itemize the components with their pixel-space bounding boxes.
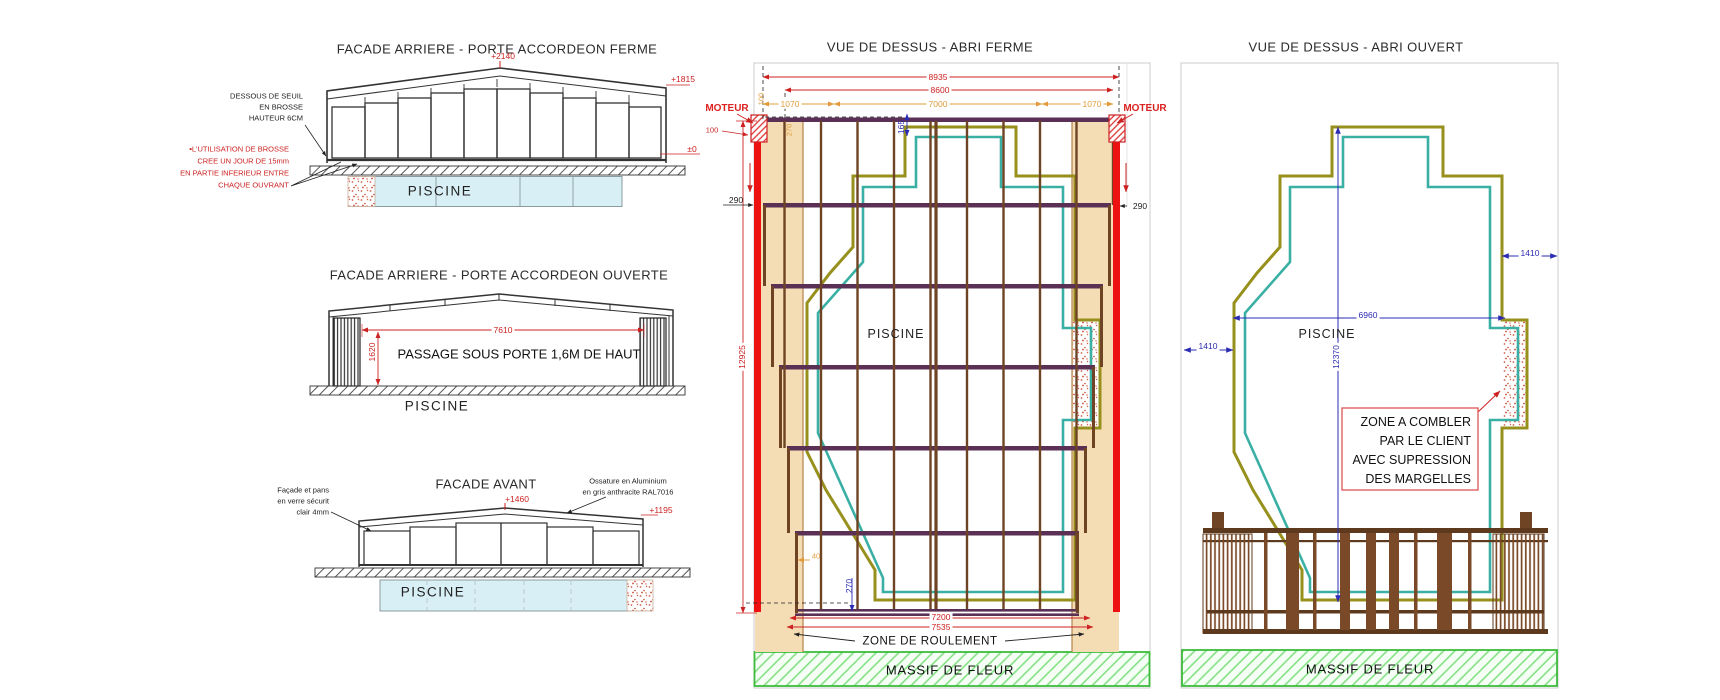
- dim-1195: +1195: [649, 506, 672, 515]
- dim-1410-right: 1410: [1519, 249, 1542, 258]
- vue-dessus-ouvert-drawing: [1181, 63, 1558, 688]
- massif-label-middle: MASSIF DE FLEUR: [886, 664, 1014, 677]
- dim-270-blue: 270: [845, 579, 854, 593]
- massif-label-right: MASSIF DE FLEUR: [1306, 663, 1434, 676]
- zone-combler-line: DES MARGELLES: [1342, 470, 1471, 489]
- drawing-canvas: [0, 0, 1720, 700]
- piscine-label: PISCINE: [401, 585, 466, 599]
- note-verre-line: clair 4mm: [296, 508, 329, 516]
- pool-enclosure-technical-drawing: FACADE ARRIERE - PORTE ACCORDEON FERME +…: [0, 0, 1720, 700]
- dim-8600: 8600: [929, 86, 952, 95]
- zone-combler-line: PAR LE CLIENT: [1342, 432, 1471, 451]
- note-seuil-line: HAUTEUR 6CM: [249, 114, 303, 122]
- dim-7200: 7200: [930, 613, 953, 622]
- dim-1815: +1815: [671, 75, 695, 84]
- title-dessus-ferme: VUE DE DESSUS - ABRI FERME: [827, 41, 1033, 54]
- note-brosse-line: EN PARTIE INFERIEUR ENTRE: [180, 169, 289, 177]
- note-brosse-line: ▪L'UTILISATION DE BROSSE: [189, 145, 289, 153]
- dim-7610: 7610: [492, 326, 515, 335]
- title-facade-avant: FACADE AVANT: [435, 478, 536, 491]
- title-dessus-ouvert: VUE DE DESSUS - ABRI OUVERT: [1249, 41, 1464, 54]
- note-brosse-line: CHAQUE OUVRANT: [218, 181, 289, 189]
- dim-8935: 8935: [927, 73, 950, 82]
- note-brosse-line: CREE UN JOUR DE 15mm: [197, 157, 289, 165]
- dim-7535: 7535: [930, 623, 953, 632]
- note-seuil-line: EN BROSSE: [259, 103, 303, 111]
- zone-combler-line: AVEC SUPRESSION: [1342, 451, 1471, 470]
- zone-roulement-label: ZONE DE ROULEMENT: [860, 636, 999, 648]
- dim-1070-left: 1070: [779, 100, 802, 109]
- dim-7000: 7000: [927, 100, 950, 109]
- piscine-label: PISCINE: [867, 328, 924, 341]
- dim-2140: +2140: [491, 52, 515, 61]
- piscine-label: PISCINE: [405, 399, 470, 413]
- note-ossature-line: en gris anthracite RAL7016: [583, 488, 674, 496]
- note-verre-line: en verre sécurit: [277, 497, 329, 505]
- moteur-label-right: MOTEUR: [1123, 104, 1166, 114]
- passage-label: PASSAGE SOUS PORTE 1,6M DE HAUT: [398, 348, 641, 361]
- note-verre-line: Façade et pans: [277, 486, 329, 494]
- moteur-label-left: MOTEUR: [705, 104, 748, 114]
- dim-12370: 12370: [1332, 343, 1341, 371]
- dim-1620: 1620: [368, 343, 377, 362]
- dim-12925: 12925: [738, 343, 747, 371]
- zone-combler-line: ZONE A COMBLER: [1342, 413, 1471, 432]
- dim-1410-left: 1410: [1197, 342, 1220, 351]
- facade-fermee-drawing: [291, 61, 700, 207]
- dim-290-left: 290: [729, 196, 743, 205]
- piscine-label: PISCINE: [408, 184, 473, 198]
- dim-40: 40: [812, 552, 820, 560]
- dim-290-right: 290: [1133, 202, 1147, 211]
- dim-1460: +1460: [505, 495, 529, 504]
- note-ossature-line: Ossature en Aluminium: [589, 477, 667, 485]
- dim-100-orange: 100: [757, 93, 765, 106]
- dim-100-red: 100: [706, 126, 719, 134]
- dim-zero: ±0: [687, 145, 696, 154]
- note-seuil-line: DESSOUS DE SEUIL: [230, 92, 303, 100]
- dim-1070-right: 1070: [1081, 100, 1104, 109]
- facade-avant-drawing: [315, 497, 690, 611]
- vue-dessus-ferme-drawing: [722, 63, 1150, 688]
- title-facade-ouverte: FACADE ARRIERE - PORTE ACCORDEON OUVERTE: [330, 269, 668, 282]
- dim-165: 165: [897, 120, 906, 134]
- piscine-label: PISCINE: [1298, 328, 1355, 341]
- dim-270-orange: 270: [785, 124, 793, 137]
- zone-combler-note: ZONE A COMBLER PAR LE CLIENT AVEC SUPRES…: [1342, 408, 1478, 490]
- dim-6960: 6960: [1357, 311, 1380, 320]
